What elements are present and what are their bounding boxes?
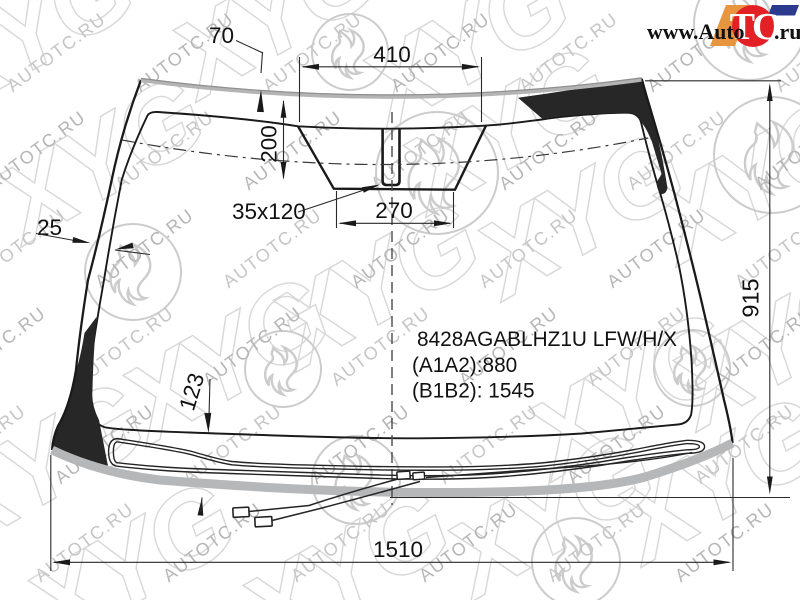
svg-text:(B1B2): 1545: (B1B2): 1545 <box>412 380 535 403</box>
svg-text:200: 200 <box>257 125 282 163</box>
svg-text:(A1A2):880: (A1A2):880 <box>412 354 517 377</box>
svg-text:35x120: 35x120 <box>232 199 306 224</box>
svg-text:270: 270 <box>375 198 413 223</box>
svg-text:915: 915 <box>738 278 764 317</box>
svg-text:.ru: .ru <box>774 19 800 44</box>
svg-text:410: 410 <box>373 42 411 67</box>
svg-text:70: 70 <box>209 23 234 48</box>
svg-text:8428AGABLHZ1U LFW/H/X: 8428AGABLHZ1U LFW/H/X <box>417 328 677 351</box>
svg-text:www.Auto: www.Auto <box>647 20 745 44</box>
svg-text:1510: 1510 <box>373 537 423 562</box>
